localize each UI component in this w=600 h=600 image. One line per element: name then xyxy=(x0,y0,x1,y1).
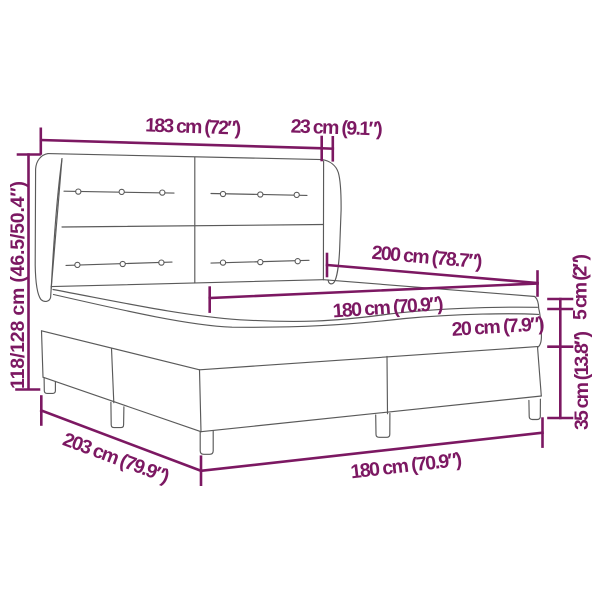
svg-text:180 cm (70.9″): 180 cm (70.9″) xyxy=(332,293,444,322)
svg-text:180 cm (70.9″): 180 cm (70.9″) xyxy=(349,449,463,484)
svg-text:5 cm (2″): 5 cm (2″) xyxy=(570,254,592,320)
svg-text:35 cm (13.8″): 35 cm (13.8″) xyxy=(571,331,593,430)
svg-text:20 cm (7.9″): 20 cm (7.9″) xyxy=(451,313,545,341)
svg-text:200 cm (78.7″): 200 cm (78.7″) xyxy=(371,242,483,273)
svg-text:183 cm (72″): 183 cm (72″) xyxy=(145,114,242,139)
svg-text:23 cm (9.1″): 23 cm (9.1″) xyxy=(290,115,383,140)
svg-text:118/128 cm (46.5/50.4″): 118/128 cm (46.5/50.4″) xyxy=(7,181,29,389)
